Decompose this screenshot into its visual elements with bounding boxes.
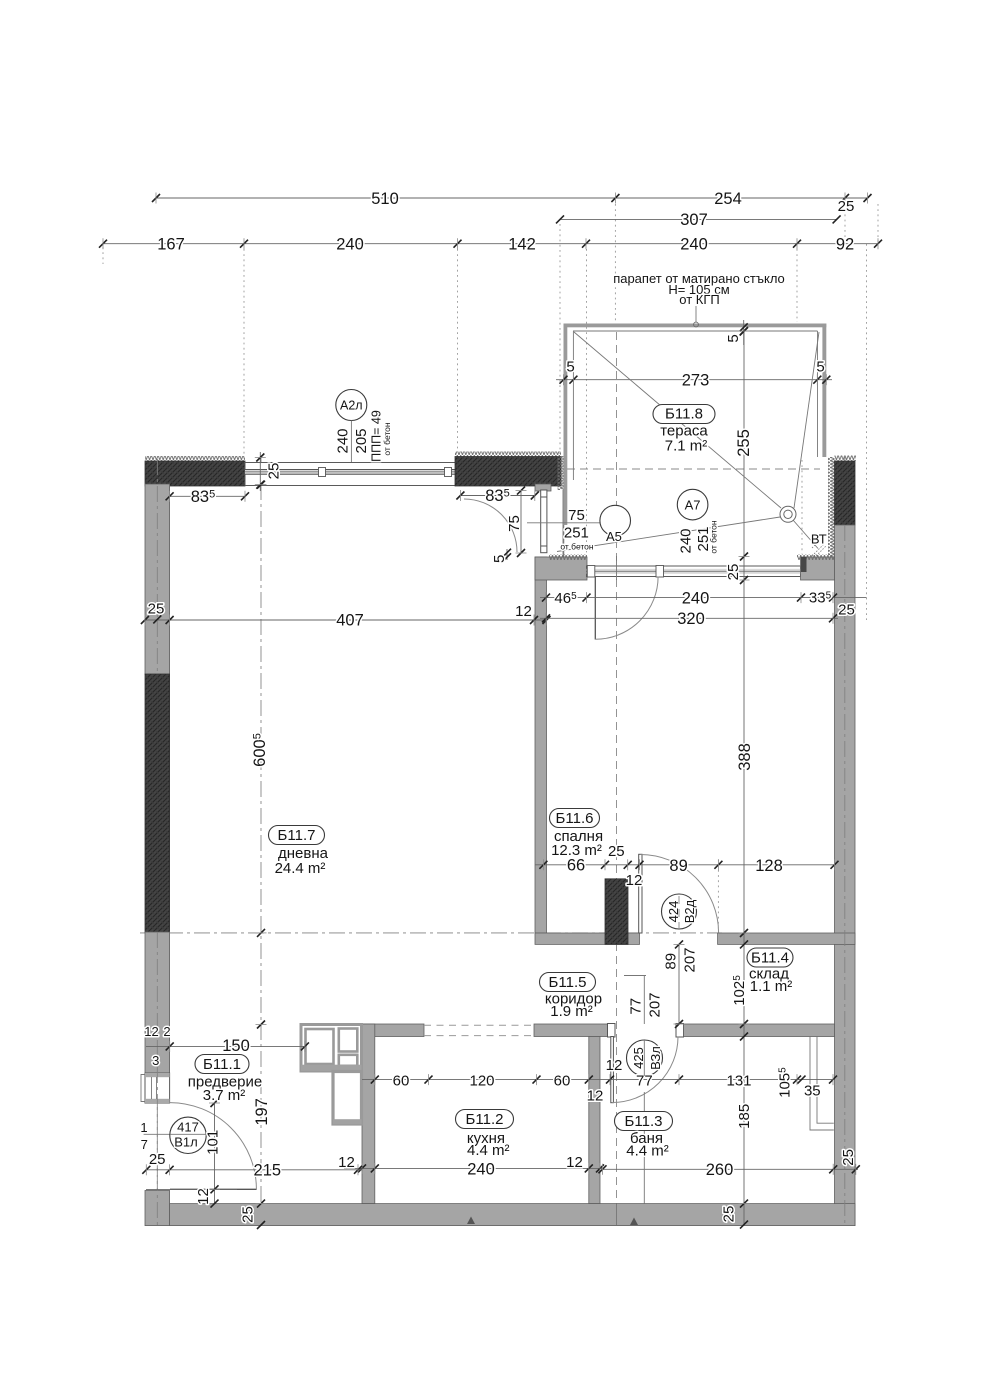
svg-text:307: 307 [680, 211, 708, 229]
svg-text:207: 207 [682, 947, 699, 972]
svg-text:Б11.4: Б11.4 [751, 949, 789, 966]
svg-text:25: 25 [840, 1149, 857, 1166]
svg-text:12: 12 [626, 872, 643, 889]
svg-text:24.4 m²: 24.4 m² [275, 860, 326, 877]
svg-text:35: 35 [804, 1082, 821, 1099]
svg-text:273: 273 [682, 371, 710, 389]
svg-text:5: 5 [816, 359, 824, 376]
svg-text:1: 1 [140, 1120, 147, 1135]
svg-text:А2л: А2л [340, 399, 363, 413]
svg-text:25: 25 [148, 601, 165, 618]
svg-text:Б11.8: Б11.8 [665, 406, 703, 423]
svg-text:3: 3 [152, 1053, 159, 1068]
svg-text:Б11.6: Б11.6 [556, 810, 594, 827]
svg-text:240: 240 [336, 236, 364, 254]
svg-text:от КГП: от КГП [679, 292, 719, 307]
svg-text:240: 240 [680, 236, 708, 254]
svg-text:A5: A5 [606, 529, 622, 544]
svg-text:12: 12 [566, 1154, 583, 1171]
svg-text:197: 197 [253, 1098, 271, 1126]
svg-text:167: 167 [157, 236, 185, 254]
svg-text:от бетон: от бетон [709, 520, 719, 554]
svg-text:25: 25 [838, 198, 855, 215]
svg-text:4.4 m²: 4.4 m² [467, 1142, 510, 1159]
svg-text:12: 12 [587, 1087, 604, 1104]
svg-text:12: 12 [515, 603, 532, 620]
svg-text:207: 207 [646, 992, 663, 1017]
svg-text:101: 101 [205, 1130, 222, 1155]
svg-text:4.4 m²: 4.4 m² [626, 1143, 669, 1160]
svg-text:150: 150 [222, 1037, 250, 1055]
svg-text:240: 240 [467, 1160, 495, 1178]
svg-text:240: 240 [335, 428, 352, 453]
svg-text:407: 407 [336, 612, 364, 630]
svg-text:128: 128 [755, 857, 783, 875]
svg-text:77: 77 [627, 998, 644, 1015]
svg-text:1.1 m²: 1.1 m² [750, 978, 793, 995]
svg-text:25: 25 [608, 843, 625, 860]
svg-text:185: 185 [736, 1104, 753, 1129]
svg-text:7: 7 [141, 1137, 148, 1152]
svg-text:320: 320 [677, 610, 705, 628]
svg-text:25: 25 [240, 1206, 257, 1223]
svg-text:215: 215 [254, 1162, 282, 1180]
svg-text:60: 60 [393, 1072, 410, 1089]
svg-text:254: 254 [714, 190, 742, 208]
svg-text:12: 12 [195, 1188, 212, 1205]
svg-text:2: 2 [163, 1024, 170, 1039]
svg-text:Б11.7: Б11.7 [278, 827, 316, 844]
svg-text:от бетон: от бетон [382, 422, 392, 456]
svg-text:Б11.5: Б11.5 [549, 974, 587, 991]
svg-text:89: 89 [662, 953, 679, 970]
svg-text:25: 25 [265, 463, 282, 480]
svg-text:251: 251 [564, 525, 589, 542]
svg-text:25: 25 [838, 602, 855, 619]
svg-text:5: 5 [491, 555, 508, 563]
svg-text:12: 12 [606, 1057, 623, 1074]
svg-text:1.9 m²: 1.9 m² [550, 1003, 593, 1020]
svg-text:Б11.3: Б11.3 [625, 1113, 663, 1130]
svg-text:В1л: В1л [174, 1134, 198, 1149]
svg-text:510: 510 [371, 190, 399, 208]
svg-text:92: 92 [836, 236, 854, 254]
svg-text:ВЗл: ВЗл [648, 1046, 663, 1070]
svg-text:3.7 m²: 3.7 m² [203, 1087, 246, 1104]
svg-text:A7: A7 [685, 498, 701, 513]
svg-text:388: 388 [736, 743, 754, 771]
svg-text:25: 25 [721, 1206, 738, 1223]
svg-text:12: 12 [338, 1154, 355, 1171]
svg-text:417: 417 [177, 1120, 199, 1135]
svg-text:66: 66 [567, 857, 585, 875]
svg-text:25: 25 [725, 564, 742, 581]
svg-text:12: 12 [144, 1024, 158, 1039]
svg-text:7.1 m²: 7.1 m² [665, 438, 708, 455]
svg-text:5: 5 [725, 334, 742, 342]
svg-text:131: 131 [726, 1072, 751, 1089]
svg-text:260: 260 [706, 1161, 734, 1179]
svg-text:60: 60 [554, 1072, 571, 1089]
svg-text:Б11.2: Б11.2 [466, 1111, 504, 1128]
svg-text:Б11.1: Б11.1 [203, 1056, 241, 1073]
svg-text:205: 205 [353, 428, 370, 453]
svg-text:5: 5 [566, 359, 574, 376]
svg-text:В2д: В2д [682, 899, 697, 923]
svg-text:75: 75 [506, 515, 523, 532]
svg-text:120: 120 [469, 1072, 494, 1089]
svg-text:240: 240 [677, 528, 694, 553]
svg-text:ВТ: ВТ [811, 532, 827, 547]
svg-text:255: 255 [735, 429, 753, 457]
svg-text:142: 142 [508, 236, 536, 254]
svg-text:75: 75 [568, 507, 585, 524]
svg-text:25: 25 [149, 1151, 166, 1168]
svg-text:240: 240 [682, 589, 710, 607]
svg-text:от бетон: от бетон [560, 542, 594, 552]
svg-text:89: 89 [669, 857, 687, 875]
